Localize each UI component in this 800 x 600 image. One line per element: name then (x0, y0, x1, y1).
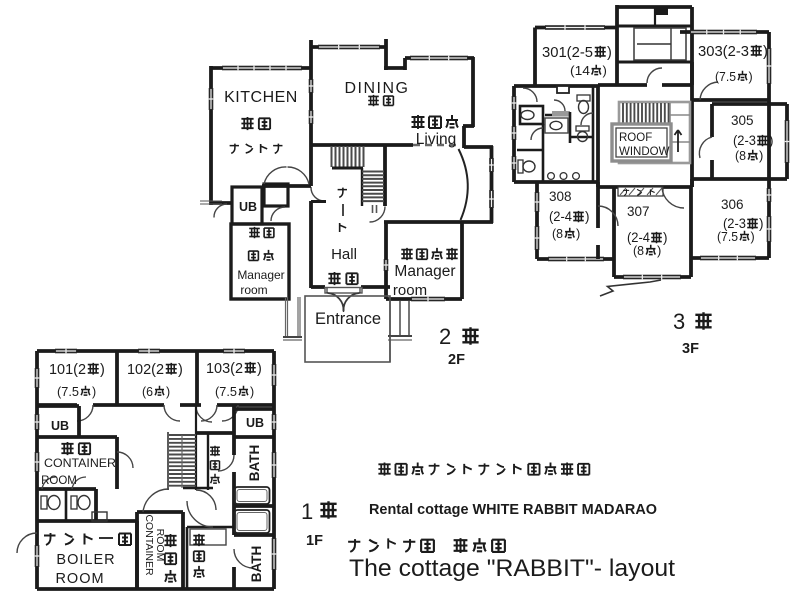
svg-text:(2-3: (2-3 (723, 216, 746, 231)
svg-text:): ) (166, 385, 170, 399)
svg-text:307: 307 (627, 204, 650, 219)
svg-text:): ) (100, 362, 105, 378)
svg-text:): ) (257, 361, 262, 377)
svg-text:): ) (657, 243, 661, 258)
svg-text:2: 2 (439, 324, 451, 349)
svg-text:CONTAINER: CONTAINER (44, 458, 116, 470)
svg-text:DINING: DINING (345, 80, 410, 97)
svg-text:(8: (8 (735, 148, 746, 163)
svg-text:): ) (603, 63, 607, 78)
svg-text:): ) (576, 226, 580, 241)
svg-text:): ) (763, 44, 768, 60)
svg-text:303(2-3: 303(2-3 (698, 44, 749, 60)
svg-text:ROOM: ROOM (55, 571, 104, 587)
svg-text:ROOF: ROOF (619, 132, 652, 144)
svg-text:KITCHEN: KITCHEN (224, 89, 298, 106)
svg-text:): ) (759, 148, 763, 163)
svg-text:Living: Living (416, 131, 457, 148)
svg-text:306: 306 (721, 197, 744, 212)
svg-text:Entrance: Entrance (315, 310, 381, 328)
svg-text:(8: (8 (633, 243, 644, 258)
svg-text:305: 305 (731, 113, 754, 128)
svg-text:(7.5: (7.5 (57, 385, 79, 399)
svg-text:ROOM: ROOM (41, 475, 77, 487)
svg-text:(7.5: (7.5 (215, 385, 237, 399)
svg-text:103(2: 103(2 (206, 361, 243, 377)
svg-text:): ) (769, 133, 774, 148)
svg-text:UB: UB (51, 419, 69, 433)
svg-text:(2-3: (2-3 (733, 133, 756, 148)
svg-text:): ) (751, 230, 755, 244)
svg-text:3F: 3F (682, 341, 699, 357)
svg-text:(6: (6 (142, 385, 153, 399)
svg-text:): ) (759, 216, 764, 231)
svg-text:Manager: Manager (394, 263, 455, 280)
svg-text:): ) (585, 209, 590, 224)
svg-text:UB: UB (239, 200, 257, 214)
svg-text:301(2-5: 301(2-5 (542, 45, 593, 61)
svg-text:3: 3 (673, 309, 685, 334)
svg-text:room: room (240, 283, 267, 297)
svg-text:Manager: Manager (237, 268, 284, 282)
svg-text:): ) (178, 362, 183, 378)
svg-text:2F: 2F (448, 352, 465, 368)
svg-text:(8: (8 (552, 226, 563, 241)
svg-text:1: 1 (301, 499, 313, 524)
svg-text:BATH: BATH (247, 445, 262, 482)
svg-text:): ) (749, 70, 753, 84)
svg-text:UB: UB (246, 416, 264, 430)
svg-text:CONTAINER: CONTAINER (143, 514, 155, 575)
svg-text:The cottage "RABBIT"- layout: The cottage "RABBIT"- layout (349, 555, 675, 582)
svg-text:(2-4: (2-4 (549, 209, 572, 224)
svg-text:): ) (250, 385, 254, 399)
svg-text:room: room (393, 282, 427, 299)
svg-text:): ) (663, 230, 668, 245)
svg-text:): ) (92, 385, 96, 399)
svg-text:308: 308 (549, 189, 572, 204)
svg-text:(7.5: (7.5 (717, 230, 738, 244)
svg-text:WINDOW: WINDOW (619, 146, 670, 158)
svg-text:Hall: Hall (331, 246, 357, 263)
svg-text:(14: (14 (570, 63, 590, 78)
svg-text:(7.5: (7.5 (715, 70, 736, 84)
svg-text:BATH: BATH (249, 546, 264, 583)
svg-text:101(2: 101(2 (49, 362, 86, 378)
svg-text:1F: 1F (306, 533, 323, 549)
svg-text:Rental cottage WHITE RABBIT MA: Rental cottage WHITE RABBIT MADARAO (369, 502, 657, 518)
svg-text:102(2: 102(2 (127, 362, 164, 378)
svg-text:): ) (607, 45, 612, 61)
svg-text:BOILER: BOILER (56, 552, 115, 568)
